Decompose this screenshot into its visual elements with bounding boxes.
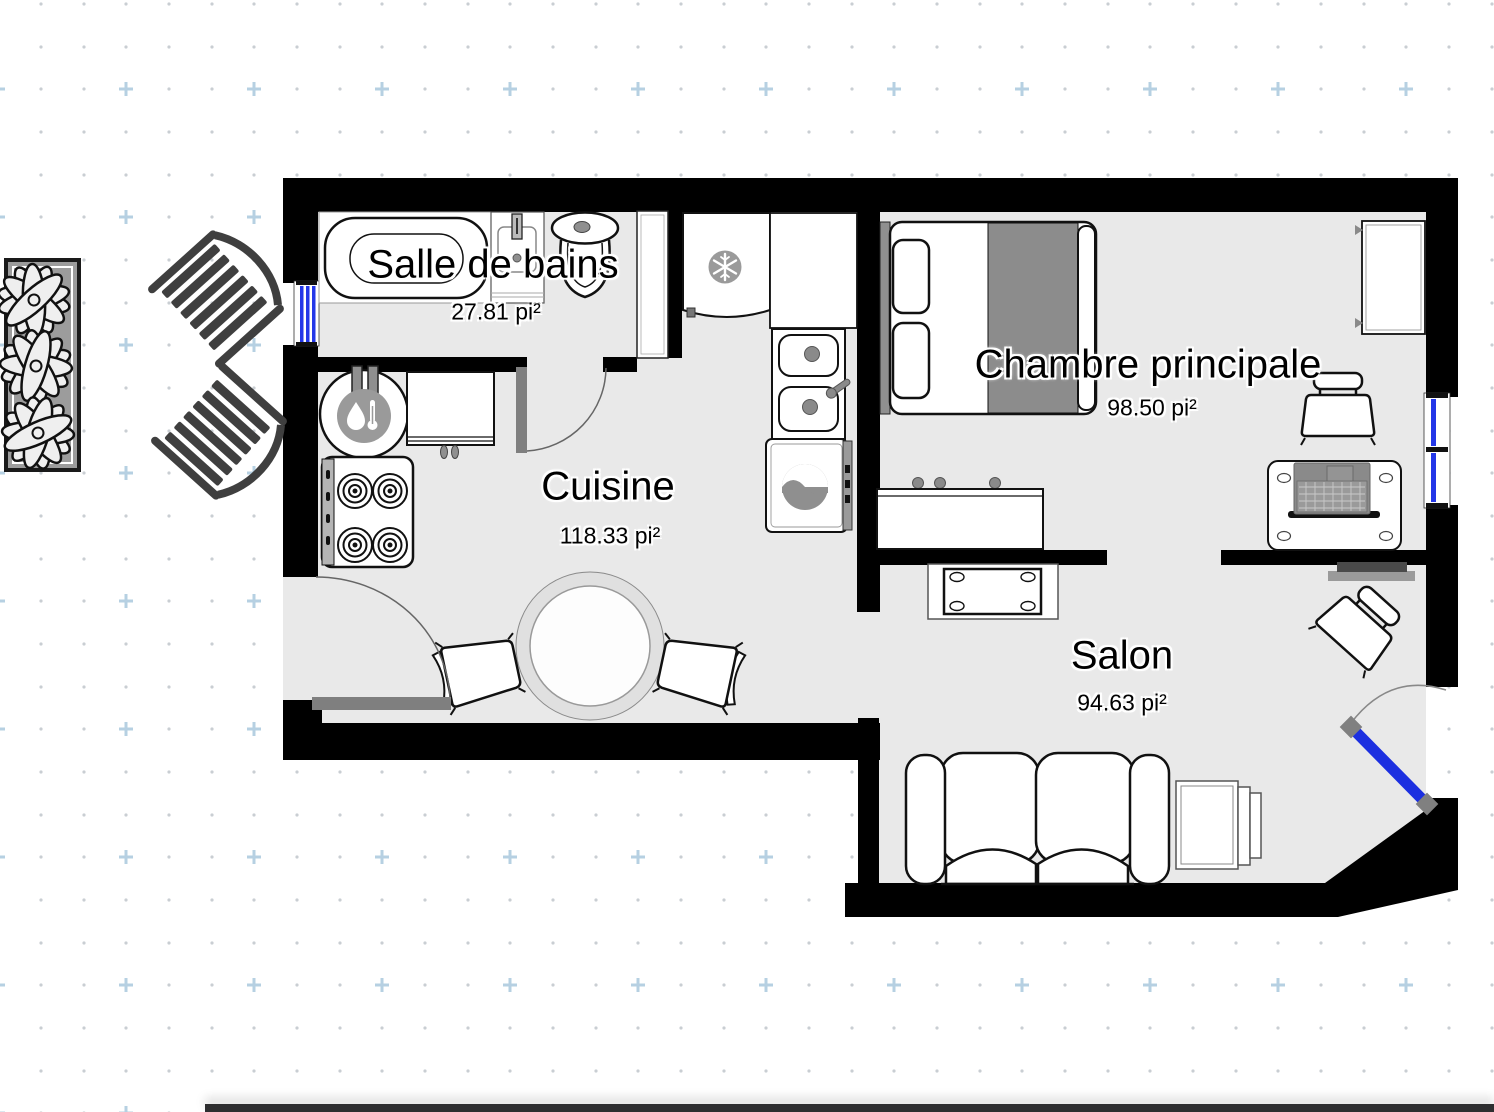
pillow-icon [893,323,929,398]
room-label-salle-de-bains: Salle de bains [367,243,618,288]
tv-icon[interactable] [1328,562,1415,581]
laptop-icon [1288,463,1380,518]
room-label-salon: Salon [1071,634,1173,679]
dining-table-icon[interactable] [516,572,664,720]
tv-stand-icon[interactable] [1176,781,1261,869]
room-area-salon: 94.63 pi² [1077,690,1167,717]
kitchen-counter[interactable] [770,213,857,328]
window-left[interactable] [294,281,319,346]
room-area-salle-de-bains: 27.81 pi² [451,299,541,326]
desk-icon[interactable] [1268,461,1401,550]
stove-icon[interactable] [322,457,413,567]
window-bedroom[interactable] [1424,393,1450,508]
wardrobe-icon[interactable] [1355,221,1425,334]
tall-cabinet-icon[interactable] [637,211,668,358]
bottom-panel-edge [205,1104,1494,1112]
washer-icon[interactable] [766,439,852,532]
coffee-table-icon[interactable] [928,564,1058,619]
kitchen-cabinet-icon[interactable] [407,372,494,459]
room-label-chambre-principale: Chambre principale [975,343,1322,388]
room-area-cuisine: 118.33 pi² [560,523,661,550]
floorplan-canvas[interactable]: Salle de bains 27.81 pi² Cuisine 118.33 … [0,0,1494,1112]
room-area-chambre-principale: 98.50 pi² [1107,395,1197,422]
sofa-icon[interactable] [906,753,1169,884]
fridge-icon[interactable] [683,213,770,317]
dresser-icon[interactable] [877,478,1043,550]
double-sink-icon[interactable] [772,329,852,439]
planter-icon[interactable] [0,255,89,484]
pillow-icon [893,240,929,313]
room-label-cuisine: Cuisine [541,465,674,510]
